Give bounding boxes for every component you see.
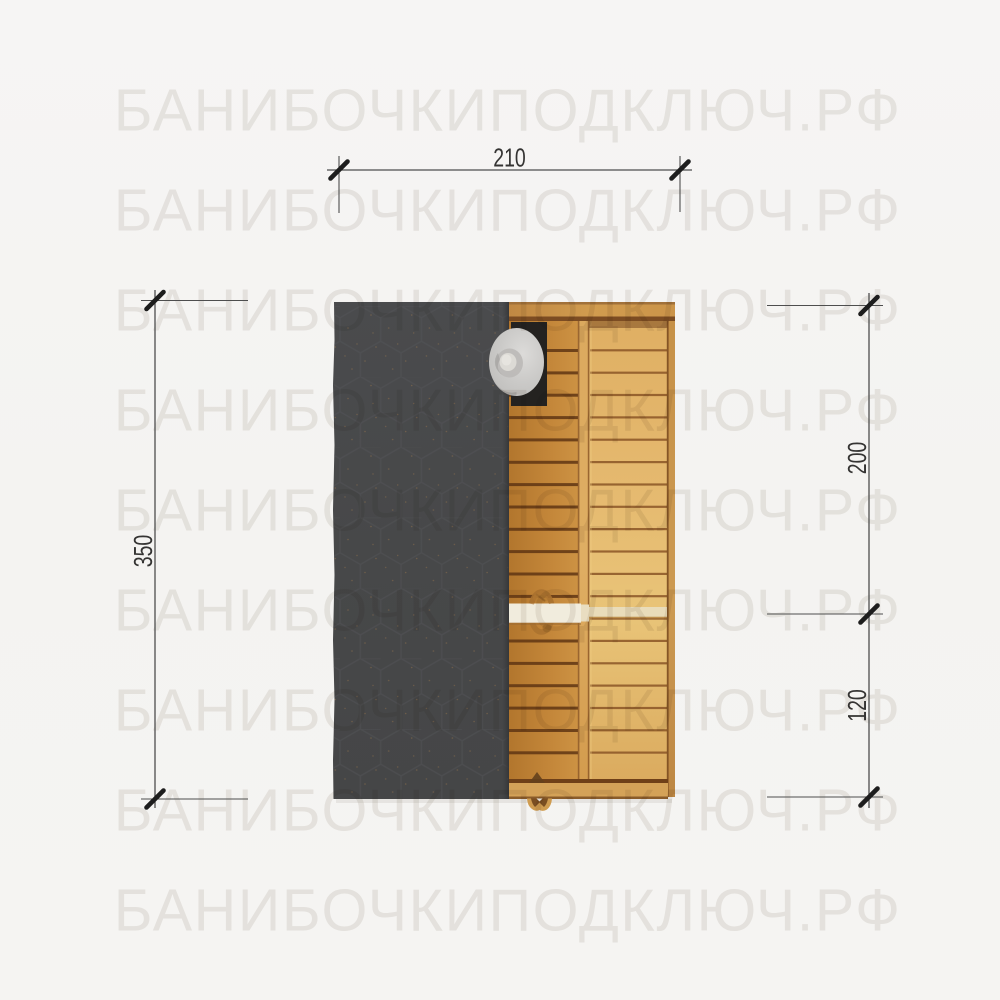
svg-text:350: 350 [128, 535, 157, 568]
svg-text:БАНИБОЧКИПОДКЛЮЧ.РФ: БАНИБОЧКИПОДКЛЮЧ.РФ [114, 178, 902, 244]
svg-text:БАНИБОЧКИПОДКЛЮЧ.РФ: БАНИБОЧКИПОДКЛЮЧ.РФ [114, 478, 902, 544]
svg-text:БАНИБОЧКИПОДКЛЮЧ.РФ: БАНИБОЧКИПОДКЛЮЧ.РФ [114, 578, 902, 644]
svg-text:БАНИБОЧКИПОДКЛЮЧ.РФ: БАНИБОЧКИПОДКЛЮЧ.РФ [114, 78, 902, 144]
svg-text:БАНИБОЧКИПОДКЛЮЧ.РФ: БАНИБОЧКИПОДКЛЮЧ.РФ [114, 778, 902, 844]
svg-text:120: 120 [842, 689, 871, 722]
svg-text:БАНИБОЧКИПОДКЛЮЧ.РФ: БАНИБОЧКИПОДКЛЮЧ.РФ [114, 278, 902, 344]
svg-text:210: 210 [493, 143, 526, 172]
svg-text:БАНИБОЧКИПОДКЛЮЧ.РФ: БАНИБОЧКИПОДКЛЮЧ.РФ [114, 378, 902, 444]
svg-text:БАНИБОЧКИПОДКЛЮЧ.РФ: БАНИБОЧКИПОДКЛЮЧ.РФ [114, 878, 902, 944]
svg-text:200: 200 [842, 442, 871, 475]
svg-text:БАНИБОЧКИПОДКЛЮЧ.РФ: БАНИБОЧКИПОДКЛЮЧ.РФ [114, 678, 902, 744]
